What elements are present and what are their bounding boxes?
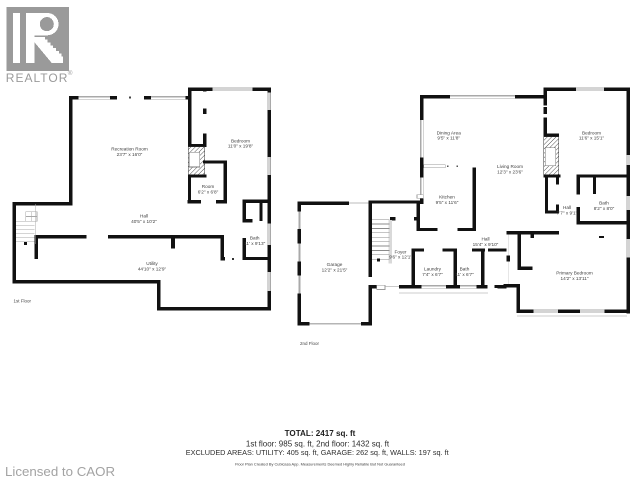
svg-text:Recreation Room: Recreation Room: [111, 147, 148, 152]
svg-text:Room: Room: [202, 184, 215, 189]
svg-text:Bedroom: Bedroom: [582, 130, 601, 135]
svg-text:7'4" x 6'7": 7'4" x 6'7": [422, 272, 443, 277]
svg-text:Bath: Bath: [250, 236, 260, 241]
svg-text:11' x 6'7": 11' x 6'7": [455, 272, 474, 277]
svg-text:Licensed to CAOR: Licensed to CAOR: [5, 464, 115, 479]
svg-text:11' x 9'13": 11' x 9'13": [244, 241, 265, 246]
svg-text:9'5" x 11'8": 9'5" x 11'8": [437, 136, 460, 141]
svg-text:Utility: Utility: [146, 261, 158, 266]
svg-text:12'2" x 21'5": 12'2" x 21'5": [322, 267, 348, 272]
svg-text:Dining Area: Dining Area: [437, 130, 462, 135]
svg-text:23'7" x 16'0": 23'7" x 16'0": [117, 152, 143, 157]
svg-text:®: ®: [68, 69, 73, 77]
svg-text:11'0" x 19'8": 11'0" x 19'8": [228, 144, 254, 149]
svg-text:40'5" x 10'2": 40'5" x 10'2": [131, 219, 157, 224]
svg-text:44'10" x 12'9": 44'10" x 12'9": [138, 266, 167, 271]
svg-text:Hall: Hall: [563, 205, 571, 210]
svg-text:Primary Bedroom: Primary Bedroom: [556, 271, 593, 276]
svg-text:Living Room: Living Room: [497, 164, 523, 169]
svg-text:Hall: Hall: [481, 236, 489, 241]
svg-text:9'5" x 11'6": 9'5" x 11'6": [436, 200, 459, 205]
svg-text:15'4" x 9'10": 15'4" x 9'10": [473, 242, 499, 247]
svg-text:Foyer: Foyer: [395, 249, 407, 254]
svg-text:14'2" x 13'11": 14'2" x 13'11": [561, 276, 589, 281]
svg-text:1st Floor: 1st Floor: [14, 299, 32, 304]
svg-text:2nd Floor: 2nd Floor: [300, 341, 320, 346]
svg-text:Bedroom: Bedroom: [231, 138, 250, 143]
svg-text:Garage: Garage: [327, 262, 343, 267]
svg-text:7'7" x 9'1": 7'7" x 9'1": [557, 211, 578, 216]
svg-text:REALTOR: REALTOR: [6, 71, 69, 85]
svg-text:9'6" x 12'1": 9'6" x 12'1": [389, 255, 412, 260]
svg-text:Bath: Bath: [599, 201, 609, 206]
svg-text:TOTAL: 2417 sq. ft: TOTAL: 2417 sq. ft: [285, 429, 356, 438]
svg-text:Hall: Hall: [140, 213, 148, 218]
svg-text:8'2" x 8'0": 8'2" x 8'0": [594, 206, 615, 211]
svg-text:EXCLUDED AREAS: UTILITY: 405 s: EXCLUDED AREAS: UTILITY: 405 sq. ft, GAR…: [186, 448, 449, 457]
svg-text:Bath: Bath: [460, 266, 470, 271]
svg-text:6'2" x 6'8": 6'2" x 6'8": [198, 190, 219, 195]
svg-text:Floor Plan Created By Cubicasa: Floor Plan Created By Cubicasa App. Meas…: [235, 462, 405, 467]
svg-text:Kitchen: Kitchen: [439, 195, 455, 200]
svg-text:12'3" x 23'6": 12'3" x 23'6": [497, 169, 523, 174]
svg-text:Laundry: Laundry: [424, 266, 442, 271]
svg-text:11'6" x 15'1": 11'6" x 15'1": [579, 136, 605, 141]
